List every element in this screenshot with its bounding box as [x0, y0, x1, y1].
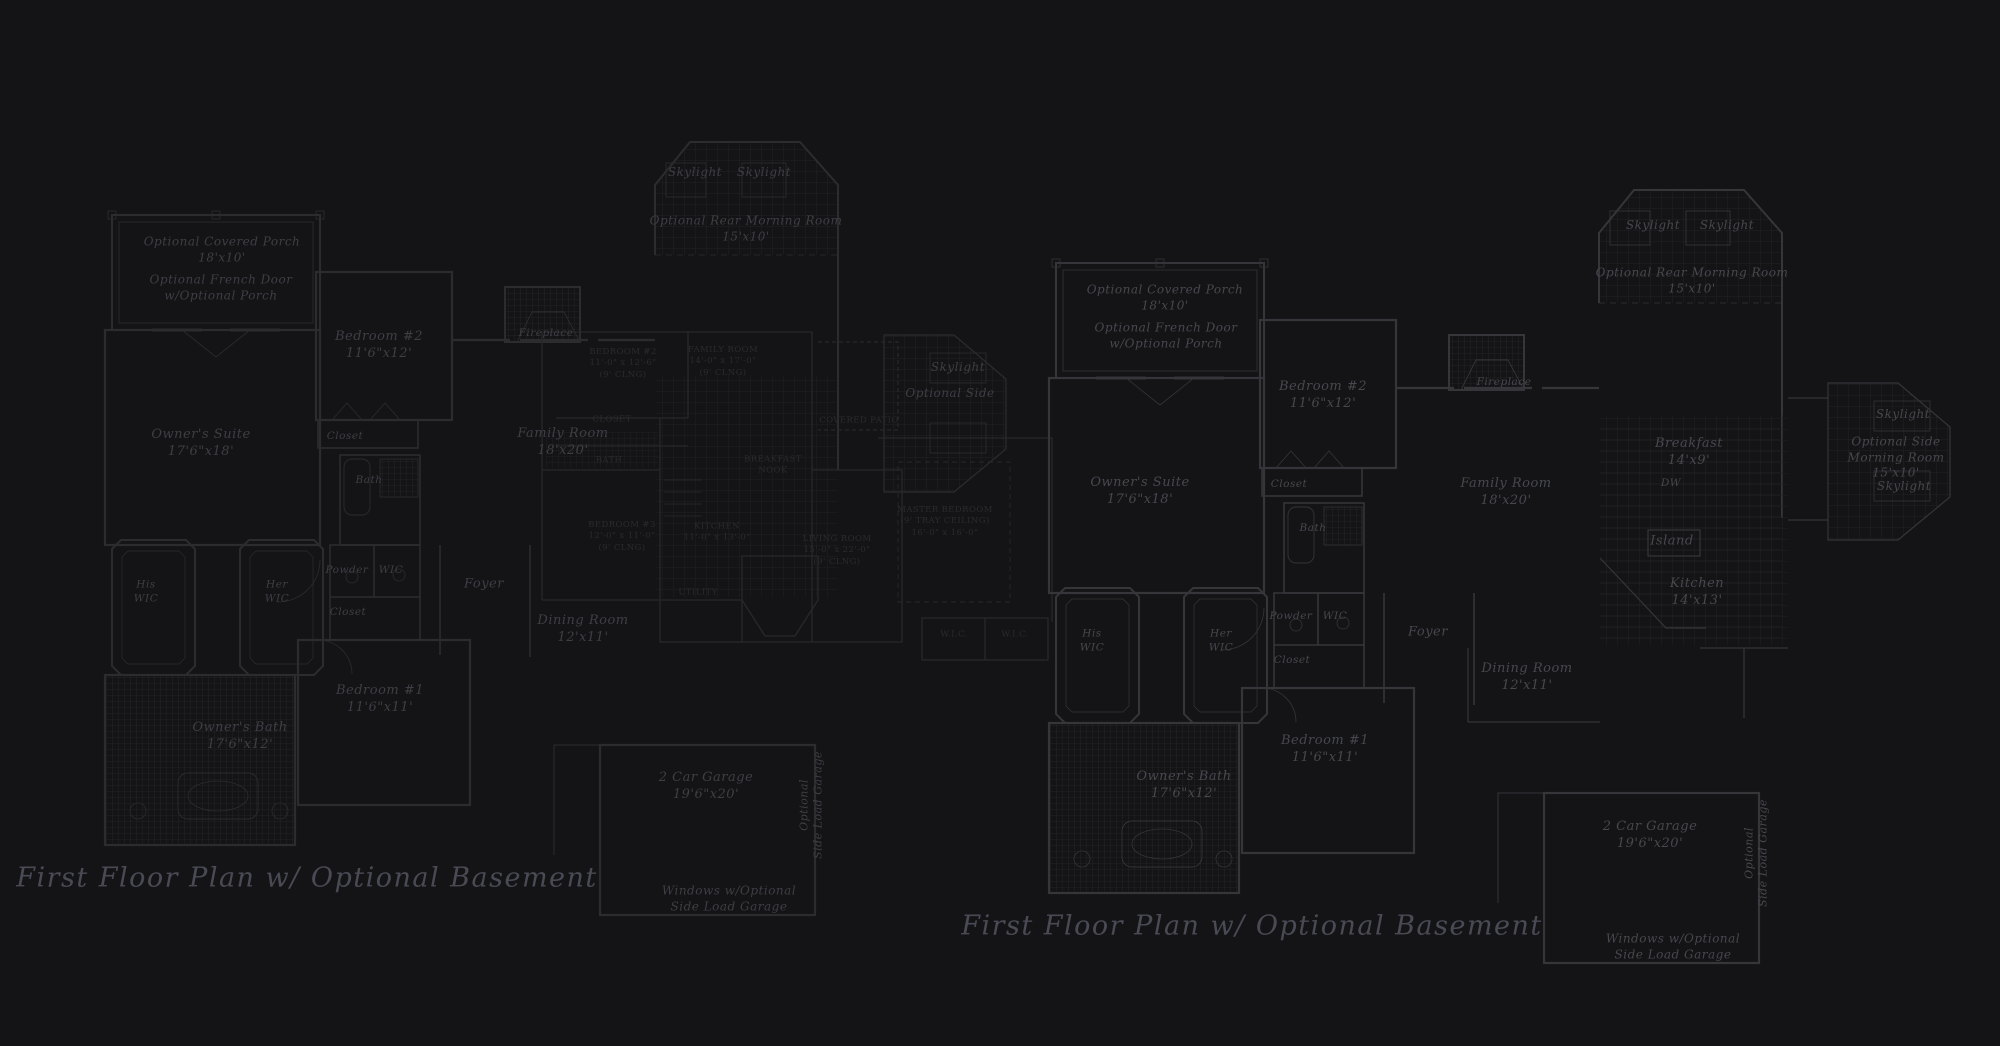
right-skylight-2: Skylight — [1700, 218, 1754, 234]
right-wic: WIC — [1323, 610, 1347, 624]
left-side-load-garage: Optional Side Load Garage — [798, 751, 827, 859]
overlay-wic-2: W.I.C. — [1001, 629, 1028, 640]
right-windows-note: Windows w/Optional Side Load Garage — [1606, 931, 1740, 962]
right-closet-1: Closet — [1271, 478, 1308, 492]
right-dining-room: Dining Room 12'x11' — [1481, 661, 1572, 695]
left-closet-2: Closet — [330, 606, 367, 620]
left-skylight-1: Skylight — [668, 165, 722, 181]
left-owners-suite: Owner's Suite 17'6"x18' — [151, 427, 250, 461]
overlay-wic-1: W.I.C. — [940, 629, 967, 640]
floor-plan-labels: SkylightSkylightOptional Rear Morning Ro… — [0, 0, 2000, 1046]
left-side-morning-room: Optional Side — [905, 386, 994, 402]
left-his-wic: His WIC — [134, 578, 158, 605]
left-skylight-2: Skylight — [737, 165, 791, 181]
right-closet-2: Closet — [1274, 654, 1311, 668]
right-covered-porch: Optional Covered Porch 18'x10' — [1087, 282, 1244, 313]
right-breakfast: Breakfast 14'x9' — [1655, 436, 1723, 470]
right-powder: Powder — [1270, 610, 1313, 624]
right-foyer: Foyer — [1408, 625, 1448, 642]
left-bedroom-2: Bedroom #2 11'6"x12' — [335, 329, 423, 363]
overlay-utility: UTILITY — [678, 587, 717, 598]
overlay-bedroom-3: BEDROOM #3 12'-0" x 11'-0" (9' CLNG) — [588, 520, 656, 554]
overlay-master-bedroom: MASTER BEDROOM (9' TRAY CEILING) 16'-0" … — [897, 505, 993, 539]
right-side-skylight-2: Skylight — [1877, 479, 1931, 495]
right-rear-morning-room: Optional Rear Morning Room 15'x10' — [1596, 265, 1789, 296]
left-windows-note: Windows w/Optional Side Load Garage — [662, 883, 796, 914]
right-fireplace: Fireplace — [1477, 376, 1532, 390]
right-owners-suite: Owner's Suite 17'6"x18' — [1090, 475, 1189, 509]
left-her-wic: Her WIC — [265, 578, 289, 605]
left-rear-morning-room: Optional Rear Morning Room 15'x10' — [650, 213, 843, 244]
overlay-covered-patio: COVERED PATIO — [819, 415, 899, 426]
right-dw: DW — [1661, 477, 1681, 491]
left-foyer: Foyer — [464, 577, 504, 594]
right-owners-bath: Owner's Bath 17'6"x12' — [1136, 769, 1231, 803]
left-closet-1: Closet — [327, 430, 364, 444]
right-bath: Bath — [1300, 522, 1327, 536]
right-bedroom-2: Bedroom #2 11'6"x12' — [1279, 379, 1367, 413]
left-covered-porch: Optional Covered Porch 18'x10' — [144, 234, 301, 265]
overlay-closet: CLOSET — [592, 414, 631, 425]
left-powder: Powder — [326, 564, 369, 578]
overlay-kitchen: KITCHEN 11'-0" x 13'-0" — [684, 522, 751, 545]
left-garage: 2 Car Garage 19'6"x20' — [659, 770, 754, 804]
overlay-living-room: LIVING ROOM 15'-0" x 22'-0" (9' CLNG) — [803, 534, 872, 568]
right-plan-title: First Floor Plan w/ Optional Basement — [961, 908, 1543, 943]
right-skylight-1: Skylight — [1626, 218, 1680, 234]
right-french-door: Optional French Door w/Optional Porch — [1095, 320, 1238, 351]
left-bedroom-1: Bedroom #1 11'6"x11' — [336, 683, 424, 717]
left-owners-bath: Owner's Bath 17'6"x12' — [192, 720, 287, 754]
overlay-bedroom-2: BEDROOM #2 11'-0" x 12'-6" (9' CLNG) — [589, 347, 657, 381]
right-garage: 2 Car Garage 19'6"x20' — [1603, 819, 1698, 853]
left-side-skylight: Skylight — [931, 360, 985, 376]
right-island: Island — [1650, 534, 1693, 551]
right-side-load-garage: Optional Side Load Garage — [1743, 799, 1772, 907]
overlay-bath: BATH — [596, 455, 623, 466]
left-bath: Bath — [356, 474, 383, 488]
right-bedroom-1: Bedroom #1 11'6"x11' — [1281, 733, 1369, 767]
left-family-room: Family Room 18'x20' — [517, 426, 608, 460]
right-his-wic: His WIC — [1080, 627, 1104, 654]
left-fireplace: Fireplace — [519, 327, 574, 341]
overlay-breakfast-nook: BREAKFAST NOOK — [744, 455, 802, 478]
overlay-family-room: FAMILY ROOM 14'-0" x 17'-0" (9' CLNG) — [688, 345, 758, 379]
floor-plan-page: SkylightSkylightOptional Rear Morning Ro… — [0, 0, 2000, 1046]
right-side-morning-room: Optional Side Morning Room 15'x10' — [1848, 435, 1945, 482]
left-dining-room: Dining Room 12'x11' — [537, 613, 628, 647]
right-family-room: Family Room 18'x20' — [1460, 476, 1551, 510]
right-her-wic: Her WIC — [1209, 627, 1233, 654]
right-kitchen: Kitchen 14'x13' — [1670, 576, 1724, 610]
right-side-skylight-1: Skylight — [1876, 407, 1930, 423]
left-plan-title: First Floor Plan w/ Optional Basement — [16, 860, 598, 895]
left-french-door: Optional French Door w/Optional Porch — [150, 272, 293, 303]
left-wic: WIC — [379, 564, 403, 578]
